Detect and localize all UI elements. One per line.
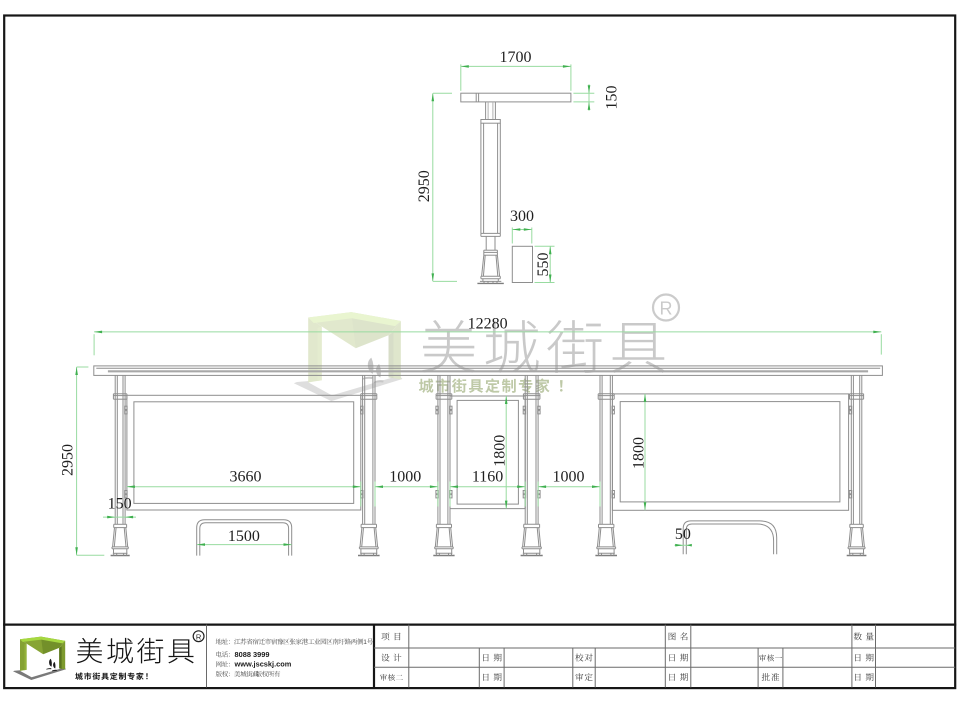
svg-text:1: 1 [363, 639, 367, 646]
svg-text:150: 150 [108, 496, 132, 513]
svg-text:R: R [196, 632, 202, 641]
svg-text:1700: 1700 [500, 49, 532, 66]
svg-text:www.jscskj.com: www.jscskj.com [234, 660, 292, 669]
svg-text:1800: 1800 [630, 437, 647, 469]
svg-text:150: 150 [604, 86, 621, 110]
svg-text:/: / [253, 671, 255, 678]
svg-text:1800: 1800 [491, 435, 508, 467]
svg-text:2950: 2950 [416, 170, 433, 202]
svg-text:1500: 1500 [228, 528, 260, 545]
svg-text:550: 550 [535, 253, 552, 277]
svg-text:12280: 12280 [468, 315, 508, 332]
svg-text:300: 300 [510, 208, 534, 225]
svg-text:8088 3999: 8088 3999 [235, 650, 270, 659]
svg-text:3660: 3660 [230, 468, 262, 485]
svg-text:1000: 1000 [553, 468, 585, 485]
svg-text:50: 50 [675, 526, 691, 543]
svg-text:1000: 1000 [389, 468, 421, 485]
svg-text:R: R [660, 299, 673, 319]
svg-text:1160: 1160 [472, 468, 503, 485]
svg-text:2950: 2950 [60, 444, 77, 476]
